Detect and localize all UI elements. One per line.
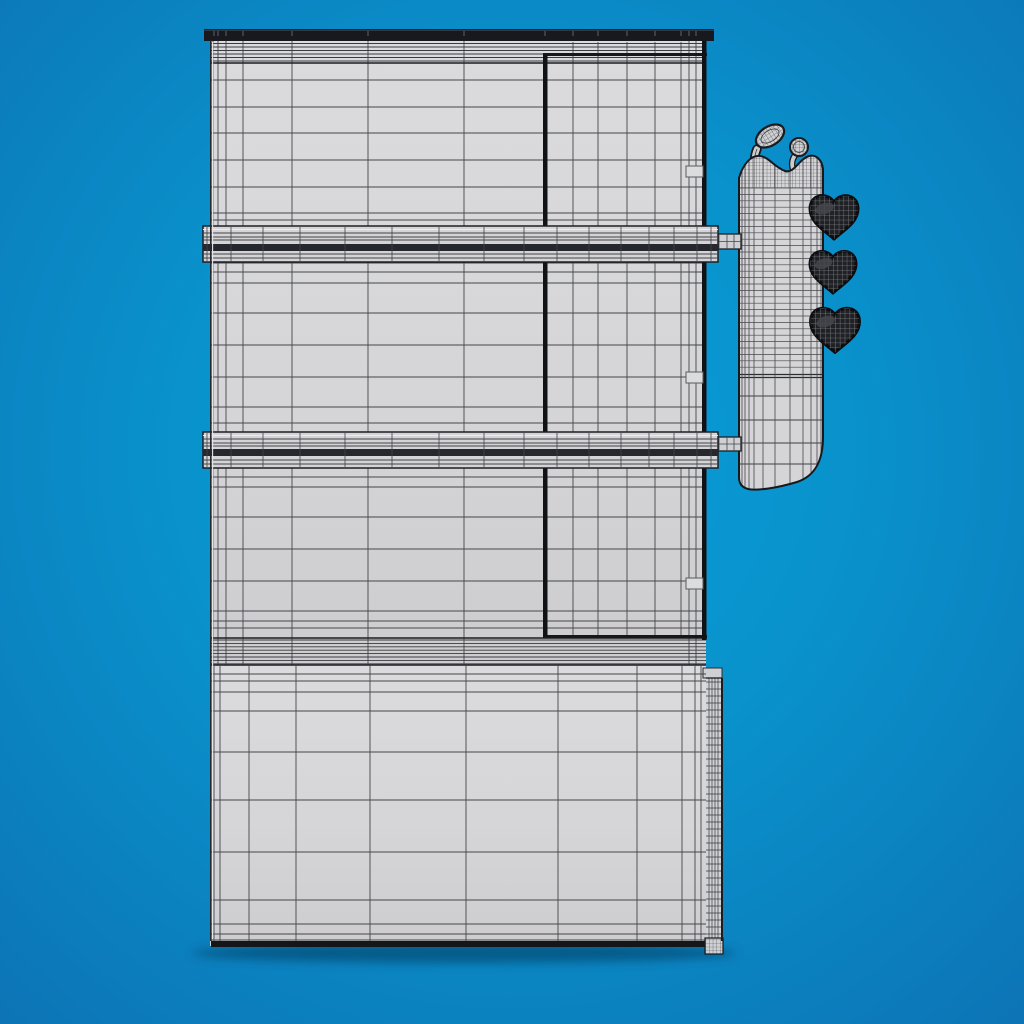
wireframe-3d-render	[0, 0, 1024, 1024]
top-rim	[204, 29, 714, 41]
render-viewport	[0, 0, 1024, 1024]
hearts	[810, 196, 859, 353]
scene-root	[0, 0, 1024, 1024]
